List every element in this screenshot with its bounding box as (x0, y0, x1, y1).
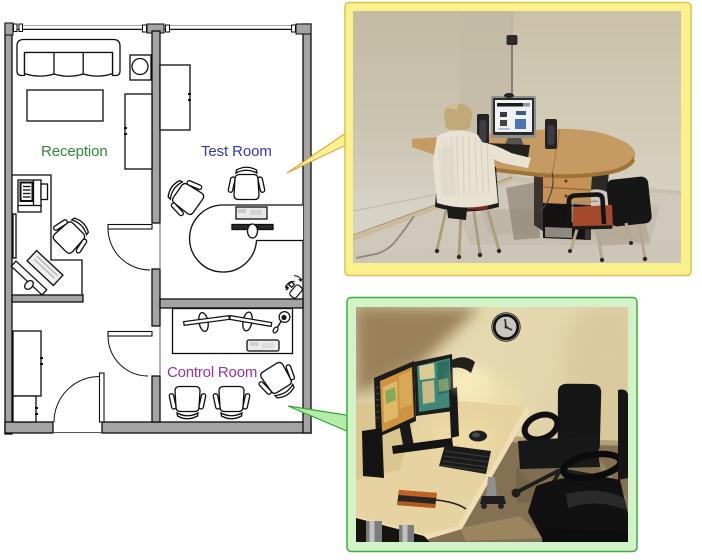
svg-text:Reception: Reception (41, 143, 108, 160)
svg-text:Test Room: Test Room (201, 143, 272, 160)
svg-text:Control Room: Control Room (167, 364, 257, 381)
